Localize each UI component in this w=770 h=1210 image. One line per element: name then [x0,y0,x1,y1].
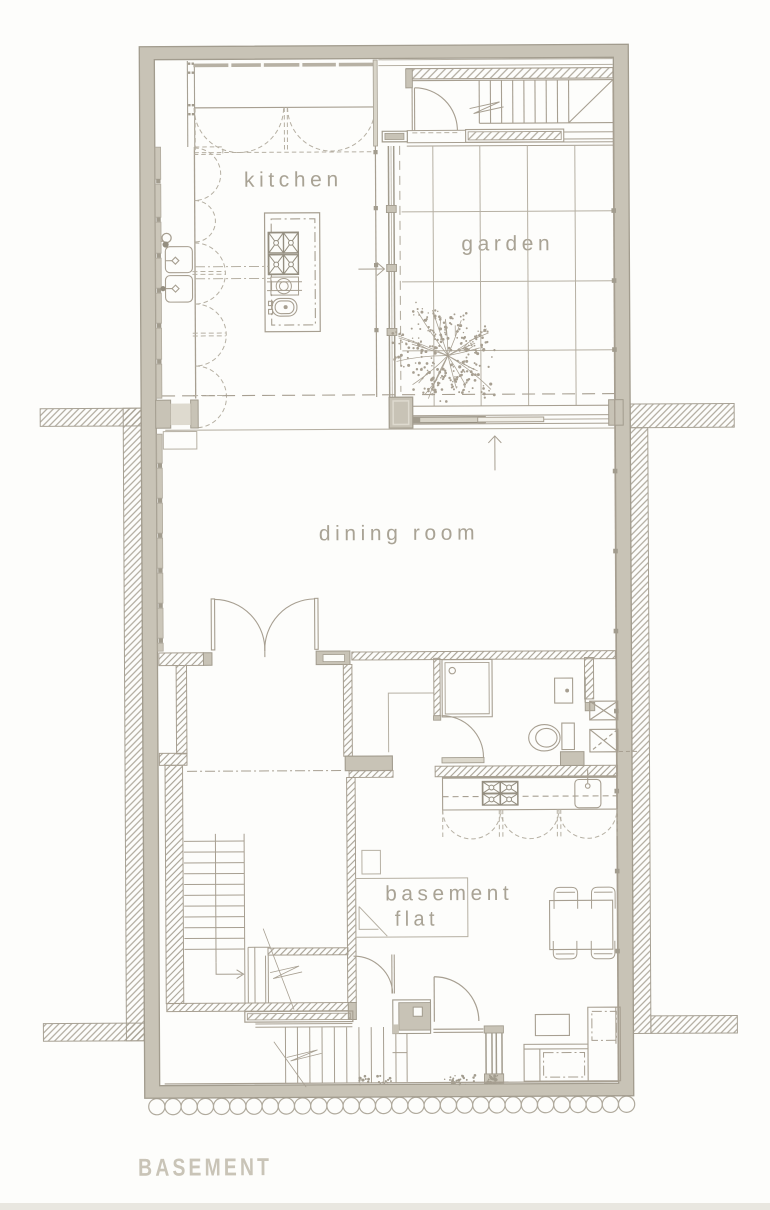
svg-text:BASEMENT: BASEMENT [138,1154,272,1182]
svg-text:basement: basement [385,882,513,906]
svg-text:garden: garden [461,232,554,255]
svg-text:kitchen: kitchen [244,168,343,192]
svg-text:dining room: dining room [319,522,479,546]
svg-text:flat: flat [395,908,439,931]
